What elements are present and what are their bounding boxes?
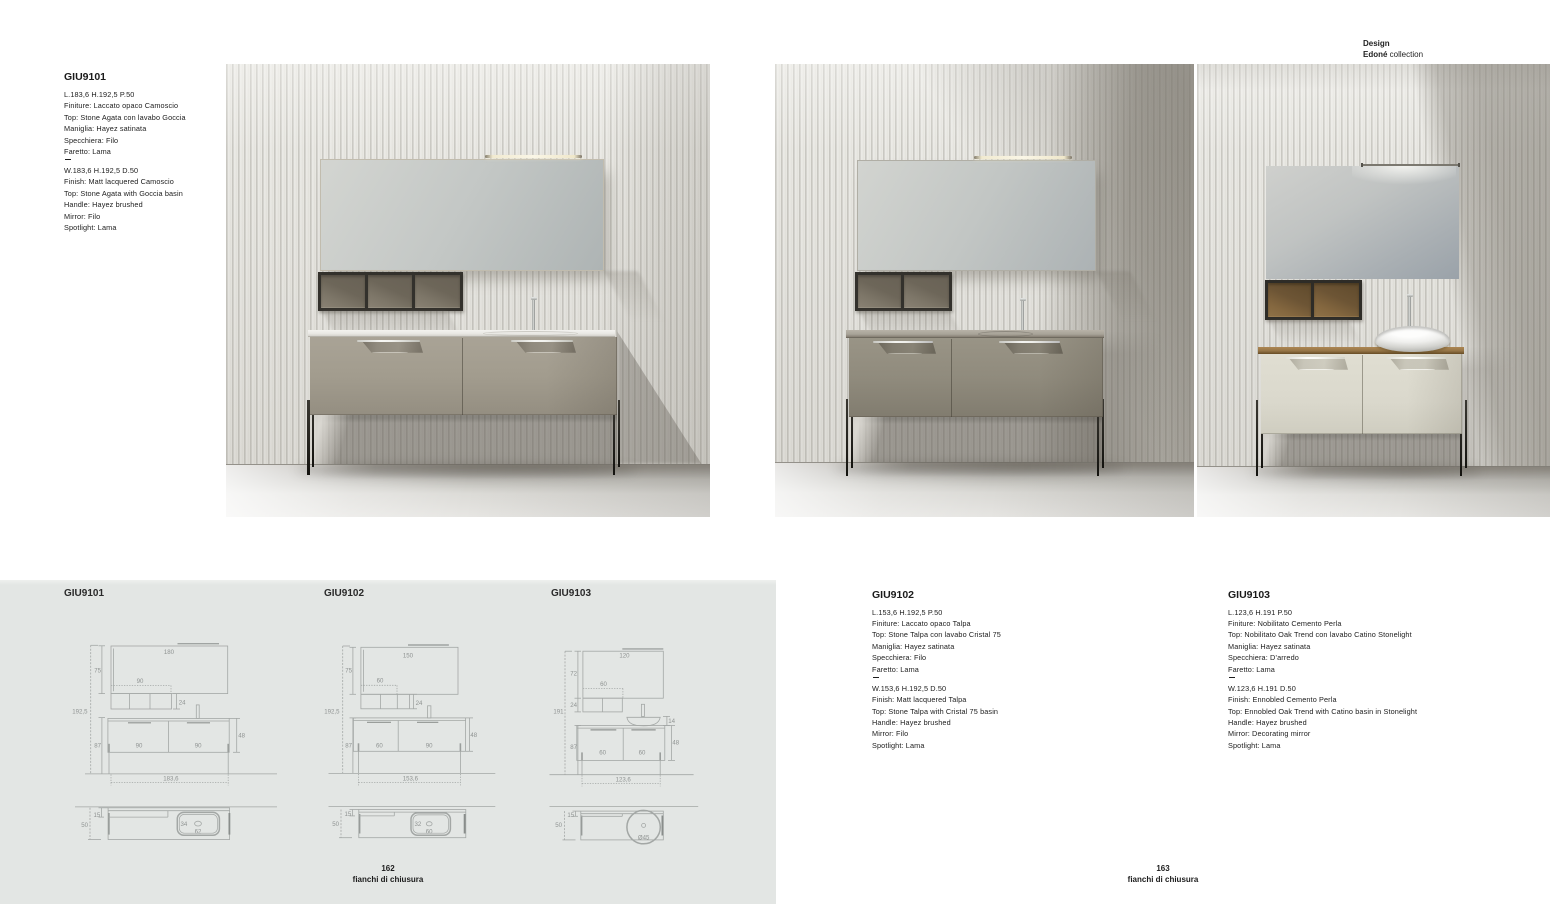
svg-text:62: 62 bbox=[195, 829, 202, 836]
svg-text:192,5: 192,5 bbox=[72, 709, 88, 716]
svg-text:60: 60 bbox=[426, 828, 433, 835]
svg-text:50: 50 bbox=[332, 821, 339, 828]
svg-text:75: 75 bbox=[345, 668, 352, 675]
svg-text:24: 24 bbox=[179, 699, 186, 706]
svg-text:32: 32 bbox=[415, 821, 422, 828]
svg-text:191: 191 bbox=[553, 709, 564, 716]
svg-text:24: 24 bbox=[570, 702, 577, 709]
svg-text:34: 34 bbox=[181, 821, 188, 828]
svg-text:153,6: 153,6 bbox=[403, 776, 419, 783]
svg-text:60: 60 bbox=[599, 749, 606, 756]
svg-text:15: 15 bbox=[94, 812, 101, 819]
svg-text:60: 60 bbox=[639, 749, 646, 756]
svg-text:183,6: 183,6 bbox=[163, 776, 179, 783]
svg-text:48: 48 bbox=[238, 732, 245, 739]
svg-text:60: 60 bbox=[376, 742, 383, 749]
svg-text:50: 50 bbox=[555, 822, 562, 829]
svg-text:75: 75 bbox=[94, 668, 101, 675]
svg-text:15: 15 bbox=[345, 811, 352, 818]
svg-text:60: 60 bbox=[600, 681, 607, 688]
svg-text:87: 87 bbox=[345, 743, 352, 750]
svg-text:120: 120 bbox=[619, 653, 630, 660]
svg-text:90: 90 bbox=[137, 678, 144, 685]
svg-text:60: 60 bbox=[377, 678, 384, 685]
svg-text:50: 50 bbox=[81, 822, 88, 829]
svg-text:15: 15 bbox=[567, 812, 574, 819]
svg-text:72: 72 bbox=[570, 670, 577, 677]
svg-text:14: 14 bbox=[668, 718, 675, 725]
svg-text:Ø45: Ø45 bbox=[638, 835, 650, 842]
svg-text:90: 90 bbox=[426, 742, 433, 749]
svg-text:48: 48 bbox=[470, 732, 477, 739]
svg-text:24: 24 bbox=[416, 700, 423, 707]
svg-text:48: 48 bbox=[672, 739, 679, 746]
svg-text:90: 90 bbox=[195, 743, 202, 750]
svg-text:123,6: 123,6 bbox=[616, 776, 632, 783]
svg-text:192,5: 192,5 bbox=[324, 709, 340, 716]
svg-text:90: 90 bbox=[136, 743, 143, 750]
svg-text:87: 87 bbox=[94, 743, 101, 750]
svg-text:180: 180 bbox=[164, 649, 175, 656]
svg-text:150: 150 bbox=[403, 653, 414, 660]
